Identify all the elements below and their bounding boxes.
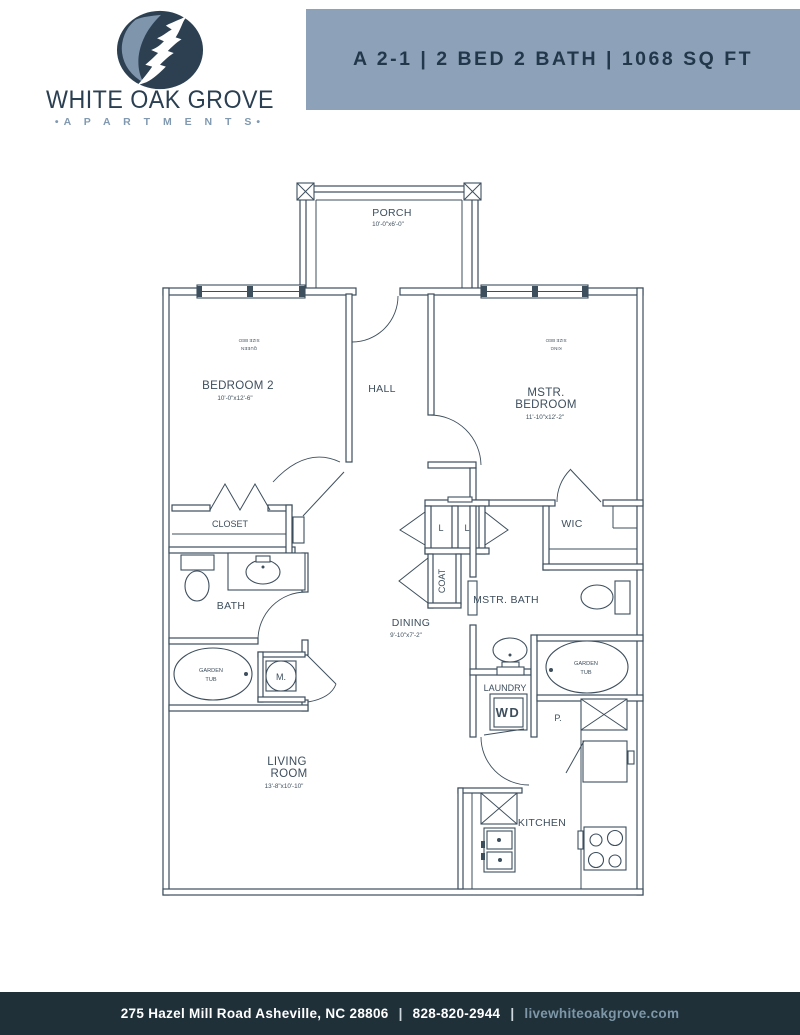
porch-post-icon <box>297 183 314 200</box>
oak-leaf-logo-icon <box>115 8 205 96</box>
hall-label: HALL <box>368 383 395 395</box>
wd-label: WD <box>496 705 521 720</box>
kitchen-sink-icon <box>481 828 515 872</box>
mstr-bedroom-label1: MSTR. <box>527 387 564 399</box>
laundry-door-swing <box>481 737 529 785</box>
svg-text:TUB: TUB <box>205 677 216 683</box>
footer-address: 275 Hazel Mill Road Asheville, NC 28806 <box>121 1006 389 1021</box>
kitchen: KITCHEN <box>458 788 626 889</box>
bedroom2-dims: 10'-0"x12'-6" <box>217 395 252 402</box>
laundry-label: LAUNDRY <box>484 683 527 693</box>
footer-separator: | <box>510 1006 514 1021</box>
window-icon <box>481 285 588 298</box>
coat-door-icon <box>399 558 428 603</box>
footer-phone: 828-820-2944 <box>413 1006 501 1021</box>
walk-in-closet: WIC <box>543 469 643 570</box>
porch-dims: 10'-0"x6'-0" <box>372 221 404 228</box>
svg-text:GARDEN: GARDEN <box>199 668 223 674</box>
bath-label: BATH <box>217 600 245 612</box>
window-icon <box>197 285 305 298</box>
svg-text:TUB: TUB <box>580 670 591 676</box>
linen-door-icon <box>400 512 425 545</box>
living-room-dims: 13'-8"x10'-10" <box>265 783 304 790</box>
mstr-bedroom-dims: 11'-10"x12'-2" <box>526 414 564 421</box>
pantry-label: P. <box>554 713 561 723</box>
linen1-label: L <box>438 523 443 533</box>
floor-plan: PORCH 10'-0"x6'-0" <box>150 175 660 915</box>
flyer-page: WHITE OAK GROVE •A P A R T M E N T S• A … <box>0 0 800 1035</box>
svg-text:SIZE BED: SIZE BED <box>238 338 259 343</box>
entry-door-swing <box>352 296 398 342</box>
footer-separator: | <box>399 1006 403 1021</box>
vanity-sink-icon <box>228 553 305 590</box>
pantry-icon <box>566 741 634 782</box>
svg-text:KING: KING <box>550 346 562 351</box>
bedroom2-closet: CLOSET <box>169 457 344 553</box>
bedroom2-label: BEDROOM 2 <box>202 380 274 392</box>
mstr-bedroom-door-swing <box>430 415 481 465</box>
bifold-door-icon <box>210 484 270 510</box>
footer-website-link[interactable]: livewhiteoakgrove.com <box>524 1006 679 1021</box>
logo-wordmark: WHITE OAK GROVE <box>30 86 290 115</box>
living-room-label1: LIVING <box>267 756 307 768</box>
svg-text:GARDEN: GARDEN <box>574 661 598 667</box>
svg-text:QUEEN: QUEEN <box>241 346 257 351</box>
linen-door-icon <box>485 512 508 545</box>
laundry-closet: LAUNDRY WD <box>481 667 529 785</box>
mstr-bath-label: MSTR. BATH <box>473 594 539 606</box>
dining-label: DINING <box>392 617 431 629</box>
toilet-icon <box>581 581 630 614</box>
living-room-label2: ROOM <box>271 768 308 780</box>
porch-label: PORCH <box>372 207 411 219</box>
dishwasher-icon <box>481 793 517 824</box>
mechanical-closet: M. <box>258 652 336 702</box>
coat-label: COAT <box>437 568 447 593</box>
mech-label: M. <box>276 672 286 682</box>
bath-door-swing <box>258 592 306 640</box>
dining-dims: 9'-10"x7'-2" <box>390 632 422 639</box>
logo-subtitle: •A P A R T M E N T S• <box>20 116 300 128</box>
wic-label: WIC <box>561 518 582 530</box>
interior-walls <box>346 294 643 506</box>
linen2-label: L <box>464 523 469 533</box>
svg-text:SIZE BED: SIZE BED <box>545 338 566 343</box>
toilet-icon <box>181 555 214 601</box>
kitchen-label: KITCHEN <box>518 817 566 829</box>
garden-tub-right: GARDEN TUB <box>546 641 628 693</box>
wic-door-swing <box>557 470 570 502</box>
footer-bar: 275 Hazel Mill Road Asheville, NC 28806 … <box>0 992 800 1035</box>
bedroom2-door-swing <box>273 457 340 482</box>
porch: PORCH 10'-0"x6'-0" <box>297 183 481 289</box>
porch-post-icon <box>464 183 481 200</box>
stove-icon <box>578 827 626 870</box>
pedestal-sink-icon <box>493 638 527 670</box>
closet-label: CLOSET <box>212 519 249 529</box>
refrigerator-icon <box>581 699 627 730</box>
unit-title: A 2-1 | 2 BED 2 BATH | 1068 SQ FT <box>353 48 753 71</box>
mstr-bedroom-label2: BEDROOM <box>515 399 577 411</box>
unit-banner: A 2-1 | 2 BED 2 BATH | 1068 SQ FT <box>306 9 800 110</box>
coat-closet: COAT <box>399 554 461 608</box>
